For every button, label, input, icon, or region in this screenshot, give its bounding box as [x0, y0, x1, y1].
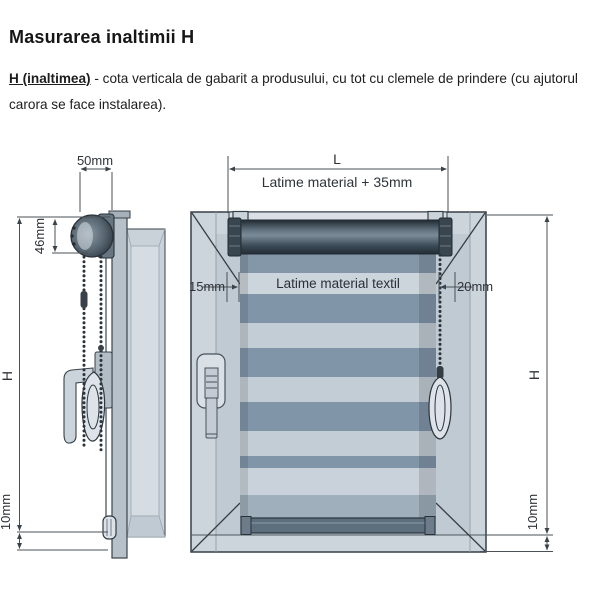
bottom-bar-side	[103, 516, 116, 539]
cassette	[228, 212, 452, 257]
dim-height-left-label: H	[0, 371, 15, 381]
dim-bottom-gap-left-label: 10mm	[0, 494, 13, 530]
dim-cassette-height-label: 46mm	[32, 218, 47, 254]
window-frame-side	[109, 211, 165, 558]
bottom-bar	[241, 517, 435, 535]
side-view	[64, 211, 165, 558]
dim-left-offset-label: 15mm	[189, 279, 225, 294]
chain-tensioner-front	[429, 377, 451, 439]
roller-tube	[228, 220, 452, 254]
page: Masurarea inaltimii H H (inaltimea) - co…	[0, 0, 600, 600]
end-cap-left	[228, 218, 241, 256]
measurement-diagram: Latime material textil	[0, 0, 600, 600]
roller-side	[70, 214, 114, 258]
front-view: Latime material textil	[191, 212, 486, 553]
dim-bottom-gap-right-label: 10mm	[525, 494, 540, 530]
dim-total-width-note: Latime material + 35mm	[262, 174, 413, 190]
dim-depth-label: 50mm	[77, 153, 113, 168]
end-cap-right	[439, 218, 452, 256]
dim-total-width-label: L	[333, 151, 341, 167]
fabric-width-label: Latime material textil	[276, 276, 400, 291]
dim-right-offset-label: 20mm	[457, 279, 493, 294]
blind-fabric	[240, 253, 436, 518]
dim-height-right-label: H	[526, 370, 542, 380]
